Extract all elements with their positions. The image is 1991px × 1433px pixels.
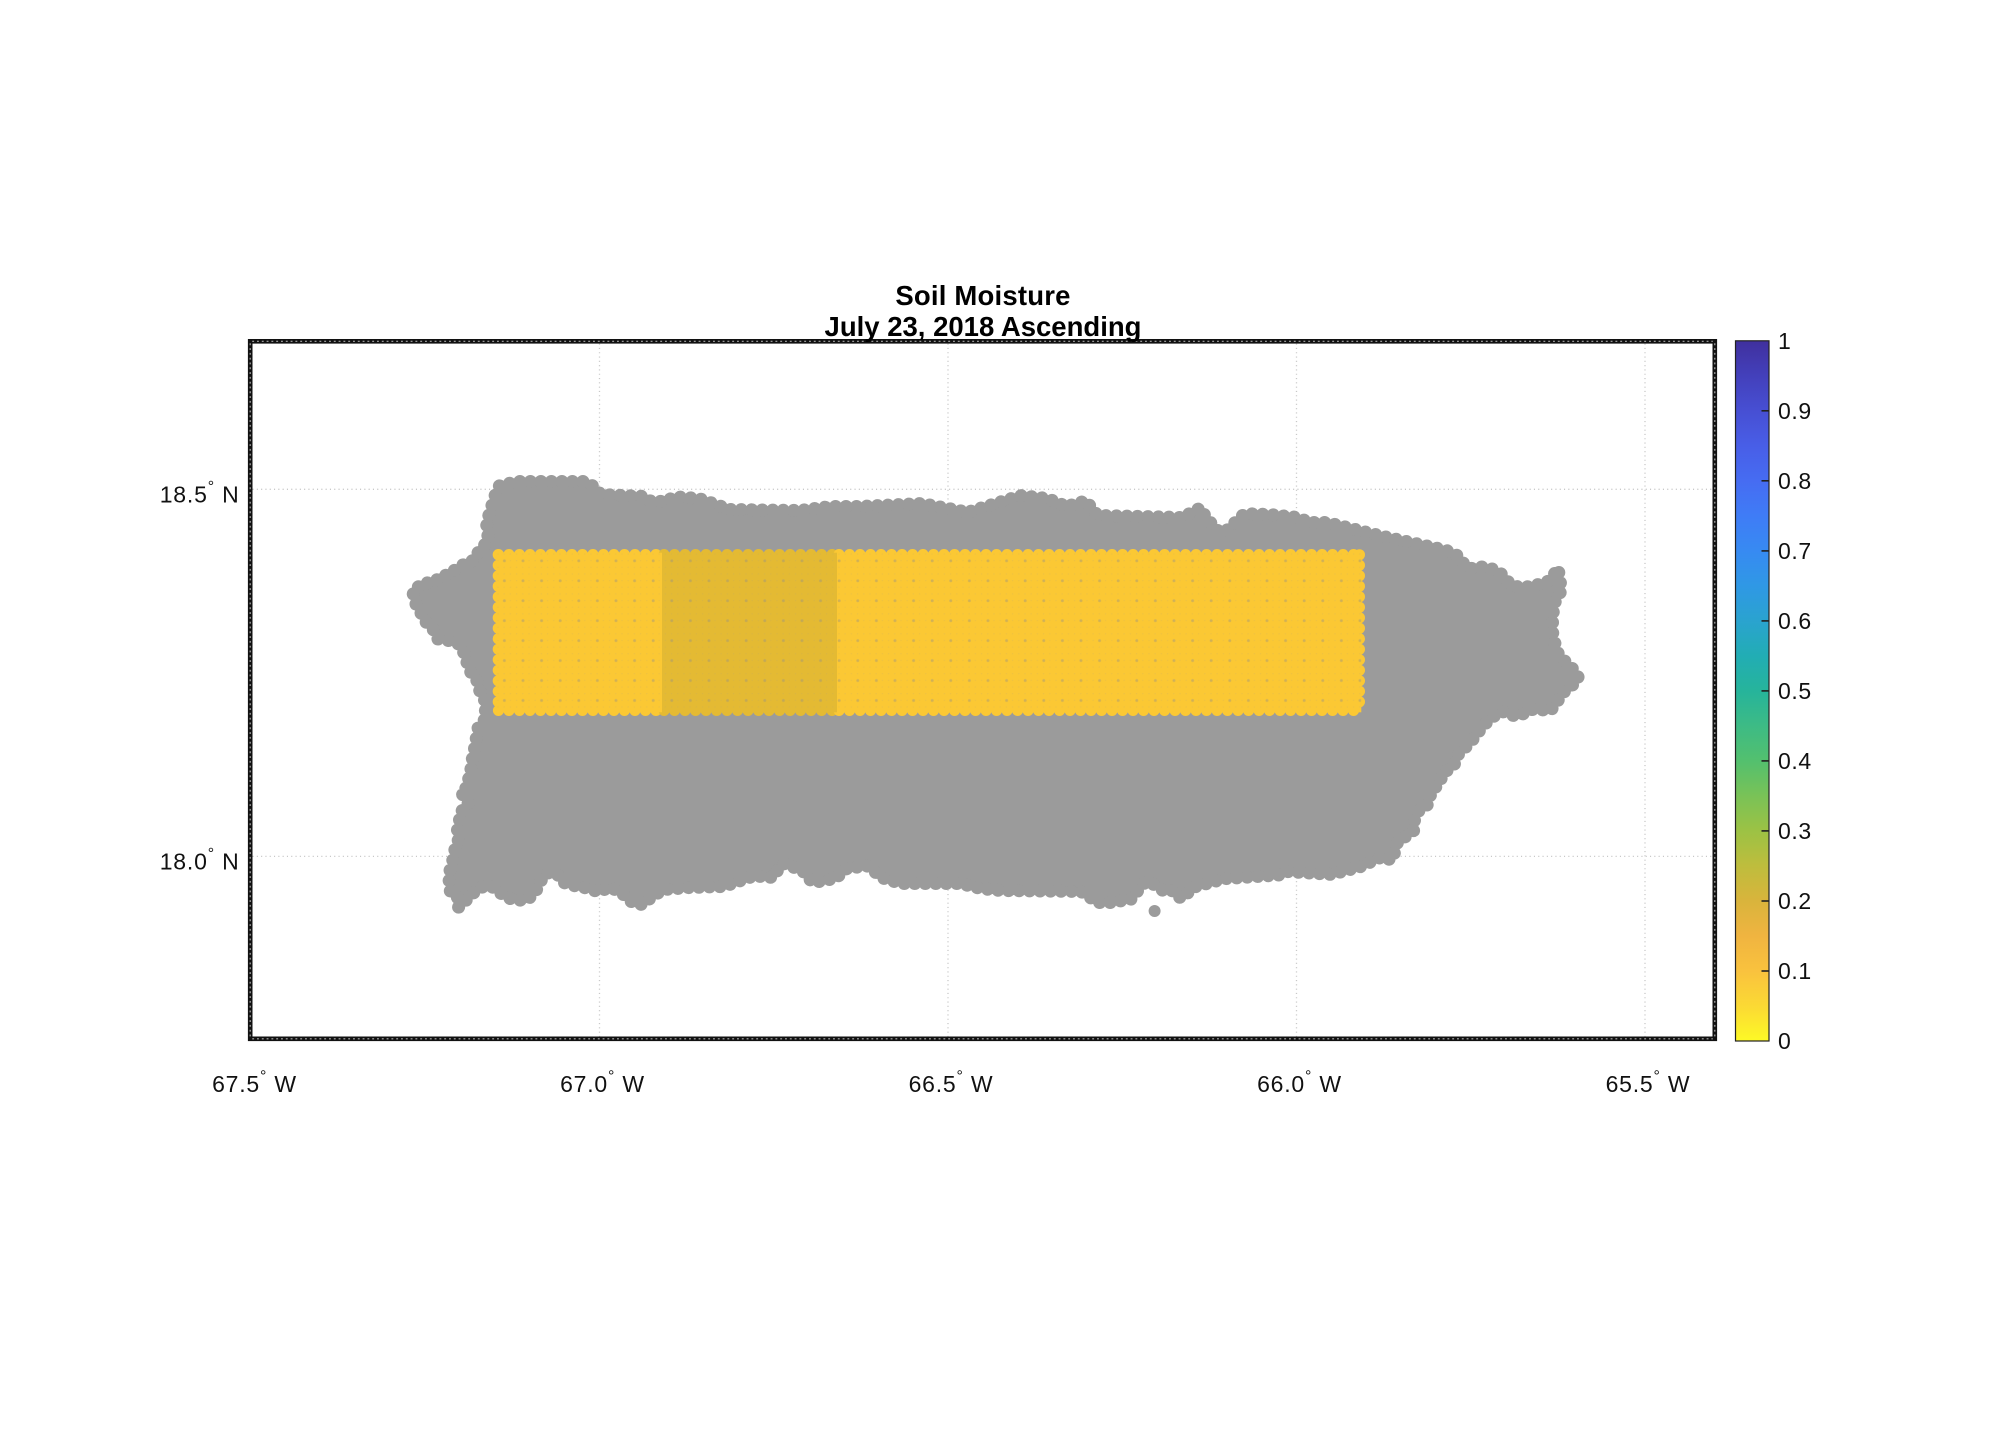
svg-text:0.8: 0.8 xyxy=(1778,468,1812,494)
svg-text:0.6: 0.6 xyxy=(1778,608,1812,634)
svg-text:0.9: 0.9 xyxy=(1778,398,1812,424)
svg-text:67.0° W: 67.0° W xyxy=(560,1068,645,1097)
svg-text:0.7: 0.7 xyxy=(1778,538,1812,564)
svg-text:0: 0 xyxy=(1778,1028,1791,1054)
svg-text:0.2: 0.2 xyxy=(1778,888,1812,914)
svg-text:18.5° N: 18.5° N xyxy=(160,478,240,507)
svg-text:0.1: 0.1 xyxy=(1778,958,1812,984)
svg-text:0.5: 0.5 xyxy=(1778,678,1812,704)
svg-text:65.5° W: 65.5° W xyxy=(1606,1068,1691,1097)
svg-text:18.0° N: 18.0° N xyxy=(160,845,240,874)
svg-text:July 23, 2018 Ascending: July 23, 2018 Ascending xyxy=(825,311,1142,342)
svg-text:66.5° W: 66.5° W xyxy=(909,1068,994,1097)
svg-text:1: 1 xyxy=(1778,328,1791,354)
svg-text:66.0° W: 66.0° W xyxy=(1257,1068,1342,1097)
svg-text:Soil Moisture: Soil Moisture xyxy=(895,280,1070,311)
svg-text:67.5° W: 67.5° W xyxy=(212,1068,297,1097)
svg-text:0.4: 0.4 xyxy=(1778,748,1812,774)
svg-text:0.3: 0.3 xyxy=(1778,818,1812,844)
